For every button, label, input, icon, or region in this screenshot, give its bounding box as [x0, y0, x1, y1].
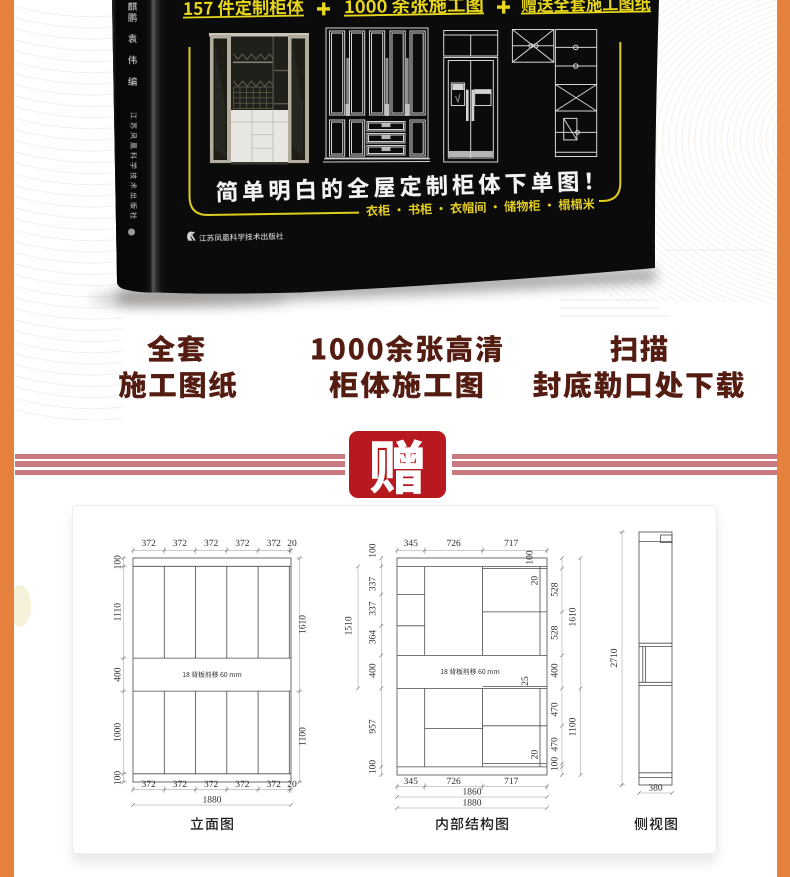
- svg-text:20: 20: [531, 750, 541, 760]
- svg-text:717: 717: [504, 539, 519, 549]
- svg-text:100: 100: [369, 760, 379, 775]
- svg-text:380: 380: [648, 783, 663, 793]
- svg-text:345: 345: [404, 539, 419, 549]
- svg-text:20: 20: [287, 780, 297, 790]
- svg-text:1880: 1880: [462, 798, 481, 808]
- svg-text:1100: 1100: [569, 717, 579, 736]
- svg-text:1860: 1860: [462, 787, 481, 797]
- svg-text:372: 372: [204, 780, 219, 790]
- svg-text:1110: 1110: [114, 603, 124, 622]
- svg-text:337: 337: [369, 577, 379, 592]
- svg-text:372: 372: [141, 780, 156, 790]
- svg-text:1610: 1610: [569, 607, 579, 626]
- svg-text:372: 372: [235, 539, 250, 549]
- svg-text:1880: 1880: [202, 795, 221, 805]
- svg-text:20: 20: [287, 539, 297, 549]
- svg-text:957: 957: [369, 719, 379, 734]
- svg-text:345: 345: [404, 777, 419, 787]
- svg-text:372: 372: [141, 539, 156, 549]
- svg-text:726: 726: [446, 539, 461, 549]
- svg-text:372: 372: [267, 539, 282, 549]
- svg-text:25: 25: [521, 676, 531, 686]
- svg-text:470: 470: [551, 737, 561, 752]
- svg-text:717: 717: [504, 777, 519, 787]
- svg-text:726: 726: [446, 777, 461, 787]
- svg-text:100: 100: [114, 555, 124, 570]
- svg-text:528: 528: [551, 625, 561, 640]
- svg-text:1510: 1510: [345, 616, 355, 635]
- svg-text:470: 470: [551, 702, 561, 717]
- svg-text:364: 364: [369, 630, 379, 645]
- svg-text:2710: 2710: [610, 648, 620, 667]
- svg-text:1000: 1000: [114, 723, 124, 742]
- svg-text:1100: 1100: [299, 727, 309, 746]
- svg-text:337: 337: [369, 601, 379, 616]
- svg-text:400: 400: [551, 663, 561, 678]
- svg-text:100: 100: [551, 757, 561, 772]
- svg-text:100: 100: [526, 550, 536, 565]
- svg-text:372: 372: [235, 780, 250, 790]
- svg-text:372: 372: [204, 539, 219, 549]
- svg-text:20: 20: [531, 576, 541, 586]
- svg-text:372: 372: [173, 539, 188, 549]
- svg-text:100: 100: [114, 771, 124, 786]
- svg-text:372: 372: [267, 780, 282, 790]
- svg-text:400: 400: [114, 667, 124, 682]
- svg-text:528: 528: [551, 582, 561, 597]
- svg-text:100: 100: [369, 543, 379, 558]
- svg-text:400: 400: [369, 663, 379, 678]
- svg-text:372: 372: [173, 780, 188, 790]
- svg-text:1610: 1610: [299, 615, 309, 634]
